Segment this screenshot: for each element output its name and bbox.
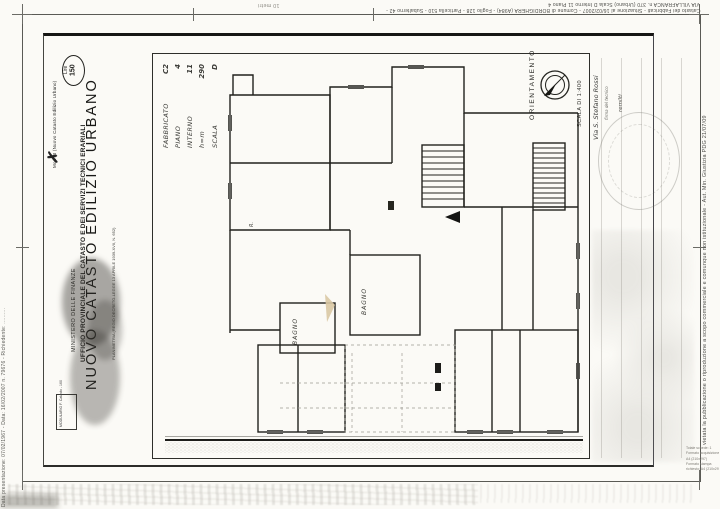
modulario-text: MODULARIO F. Catasto - 160 (59, 397, 64, 427)
scan-noise-band (8, 484, 478, 505)
room-label-bagno: BAGNO (361, 288, 368, 315)
tape-artifact (325, 294, 335, 322)
register-tick (193, 8, 194, 21)
staircase-hatching (422, 143, 565, 210)
watermark-scale-note: 10 metri (258, 2, 279, 8)
terrace-dashed-lines (280, 345, 455, 432)
scan-noise-corner (0, 494, 58, 508)
watermark-right-edge: vietata la pubblicazione o riproduzione … (702, 55, 708, 445)
handwritten-note: firma del tecnico (604, 80, 609, 120)
plan-walls (230, 67, 578, 432)
stamp-value: 150 (70, 58, 78, 82)
register-tick (22, 4, 23, 24)
watermark-left-edge: Data presentazione: 07/02/1967 - Data: 1… (1, 175, 7, 507)
ink-smudge (88, 300, 122, 360)
corner-line: Formato acquisizione: (686, 451, 719, 456)
lire-150-stamp: Lire 150 (62, 55, 85, 86)
modulario-line1: MODULARIO (59, 406, 63, 427)
stair-direction-arrow (445, 211, 460, 223)
lire-150-stamp-text: Lire 150 (64, 58, 81, 82)
register-tick (16, 247, 29, 248)
watermark-corner-block: Totale schede: 1 Formato acquisizione: A… (686, 446, 719, 472)
scanned-cadastral-document: ✗ Mod. B (Nuovo Catasto Edilizio Urbano)… (0, 0, 720, 509)
door-mark (388, 201, 394, 210)
room-label-bagno: BAGNO (292, 318, 299, 345)
handwritten-street: Via S. Stefano Rossi (592, 62, 600, 140)
scan-noise (592, 230, 694, 462)
mod-b-note: Mod. B (Nuovo Catasto Edilizio Urbano) (52, 57, 57, 168)
register-tick (699, 470, 700, 490)
window-marks (229, 66, 580, 434)
modulario-line2: F. Catasto - 160 (59, 380, 63, 405)
watermark-cadastre-line: Catasto dei Fabbricati - Situazione al 1… (386, 7, 700, 13)
floor-plan-drawing: BAGNO BAGNO R. (152, 53, 588, 457)
room-label-r: R. (249, 222, 255, 227)
register-tick (373, 8, 374, 21)
scan-noise-band (480, 484, 695, 503)
corner-line: richiesto: A4 (210x297) (686, 467, 719, 472)
